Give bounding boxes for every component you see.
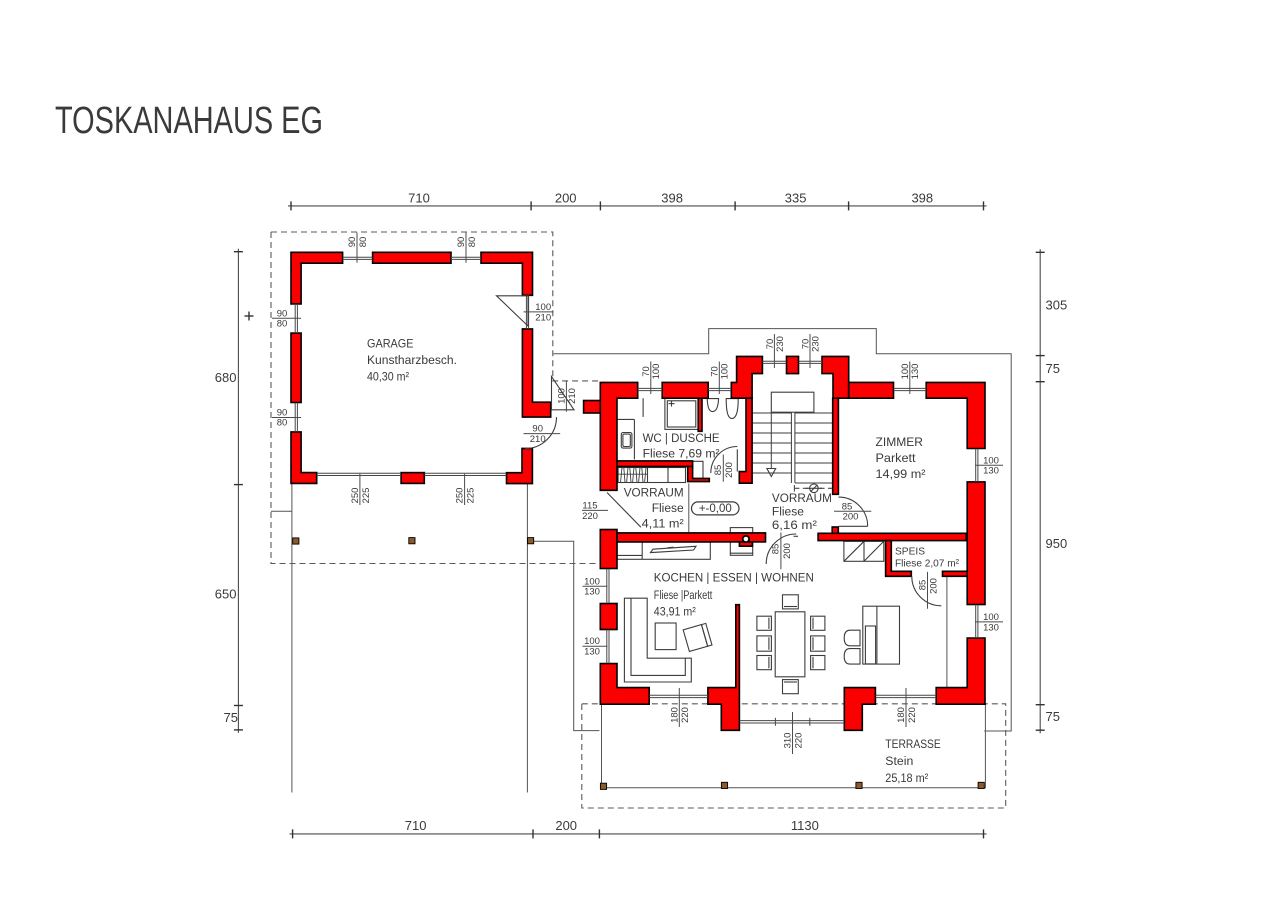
svg-text:85: 85	[842, 501, 853, 512]
svg-text:100: 100	[535, 302, 551, 313]
svg-text:75: 75	[224, 710, 238, 725]
svg-text:210: 210	[567, 388, 578, 404]
svg-text:+-0,00: +-0,00	[699, 503, 732, 515]
svg-text:WC | DUSCHE: WC | DUSCHE	[643, 431, 720, 445]
svg-text:398: 398	[911, 190, 933, 205]
svg-text:200: 200	[555, 190, 577, 205]
svg-text:230: 230	[775, 336, 786, 352]
svg-text:1130: 1130	[791, 818, 819, 833]
svg-text:6,16 m²: 6,16 m²	[772, 518, 817, 532]
svg-text:130: 130	[584, 647, 600, 658]
svg-text:220: 220	[793, 733, 804, 749]
svg-text:225: 225	[466, 488, 477, 504]
svg-text:100: 100	[556, 388, 567, 404]
svg-text:SPEIS: SPEIS	[895, 547, 925, 558]
svg-text:VORRAUM: VORRAUM	[624, 486, 684, 500]
svg-text:Fliese 7,69 m²: Fliese 7,69 m²	[643, 447, 720, 461]
svg-text:40,30 m²: 40,30 m²	[367, 370, 409, 384]
svg-text:80: 80	[277, 318, 288, 329]
svg-text:305: 305	[1046, 298, 1068, 313]
svg-text:14,99 m²: 14,99 m²	[876, 467, 926, 481]
svg-text:130: 130	[983, 622, 999, 633]
svg-text:250: 250	[455, 488, 466, 504]
svg-text:Stein: Stein	[885, 754, 913, 768]
svg-text:75: 75	[1046, 361, 1060, 376]
svg-text:90: 90	[347, 237, 358, 248]
svg-text:398: 398	[661, 190, 683, 205]
svg-text:100: 100	[584, 576, 600, 587]
svg-text:90: 90	[532, 424, 543, 435]
svg-text:ZIMMER: ZIMMER	[876, 435, 924, 449]
svg-text:100: 100	[651, 364, 662, 380]
svg-text:650: 650	[215, 586, 237, 601]
svg-text:Fliese 2,07 m²: Fliese 2,07 m²	[895, 558, 960, 569]
svg-text:Fliese: Fliese	[652, 501, 684, 515]
svg-text:130: 130	[584, 587, 600, 598]
svg-text:TERRASSE: TERRASSE	[885, 737, 941, 751]
svg-text:100: 100	[584, 636, 600, 647]
svg-text:680: 680	[215, 370, 237, 385]
svg-text:220: 220	[907, 707, 918, 723]
svg-text:25,18 m²: 25,18 m²	[885, 771, 928, 785]
svg-text:115: 115	[582, 500, 597, 511]
svg-text:80: 80	[358, 237, 369, 248]
svg-text:710: 710	[408, 190, 430, 205]
svg-text:TOSKANAHAUS EG: TOSKANAHAUS EG	[55, 100, 323, 142]
svg-text:85: 85	[917, 580, 928, 591]
svg-text:80: 80	[277, 418, 288, 429]
svg-text:180: 180	[669, 707, 680, 723]
svg-text:VORRAUM: VORRAUM	[772, 491, 832, 505]
svg-text:85: 85	[713, 465, 724, 476]
svg-text:310: 310	[783, 733, 794, 749]
svg-text:75: 75	[1046, 709, 1060, 724]
svg-text:130: 130	[983, 466, 999, 477]
svg-text:180: 180	[896, 707, 907, 723]
svg-text:335: 335	[785, 190, 807, 205]
svg-text:Fliese: Fliese	[772, 505, 804, 519]
svg-text:220: 220	[582, 511, 598, 522]
svg-text:100: 100	[983, 455, 999, 466]
svg-text:210: 210	[530, 434, 546, 445]
svg-text:43,91 m²: 43,91 m²	[654, 605, 696, 619]
svg-text:130: 130	[910, 364, 921, 380]
svg-text:100: 100	[983, 612, 999, 623]
svg-text:Fliese |Parkett: Fliese |Parkett	[654, 588, 713, 602]
svg-text:200: 200	[843, 512, 859, 523]
svg-text:200: 200	[782, 543, 793, 559]
svg-text:200: 200	[929, 578, 940, 594]
svg-text:GARAGE: GARAGE	[367, 336, 414, 350]
svg-text:Kunstharzbesch.: Kunstharzbesch.	[367, 353, 457, 367]
svg-text:950: 950	[1046, 536, 1068, 551]
svg-text:710: 710	[405, 818, 427, 833]
svg-text:100: 100	[720, 364, 731, 380]
svg-text:220: 220	[680, 707, 691, 723]
svg-text:KOCHEN | ESSEN | WOHNEN: KOCHEN | ESSEN | WOHNEN	[654, 570, 814, 584]
svg-text:Parkett: Parkett	[876, 451, 917, 465]
svg-text:4,11 m²: 4,11 m²	[642, 517, 684, 531]
svg-text:230: 230	[810, 336, 821, 352]
svg-text:90: 90	[456, 237, 467, 248]
svg-text:200: 200	[555, 818, 577, 833]
svg-text:250: 250	[350, 488, 361, 504]
svg-text:225: 225	[361, 488, 372, 504]
svg-text:85: 85	[771, 544, 782, 555]
svg-text:210: 210	[535, 312, 551, 323]
svg-text:200: 200	[724, 462, 735, 478]
svg-text:80: 80	[467, 237, 478, 248]
